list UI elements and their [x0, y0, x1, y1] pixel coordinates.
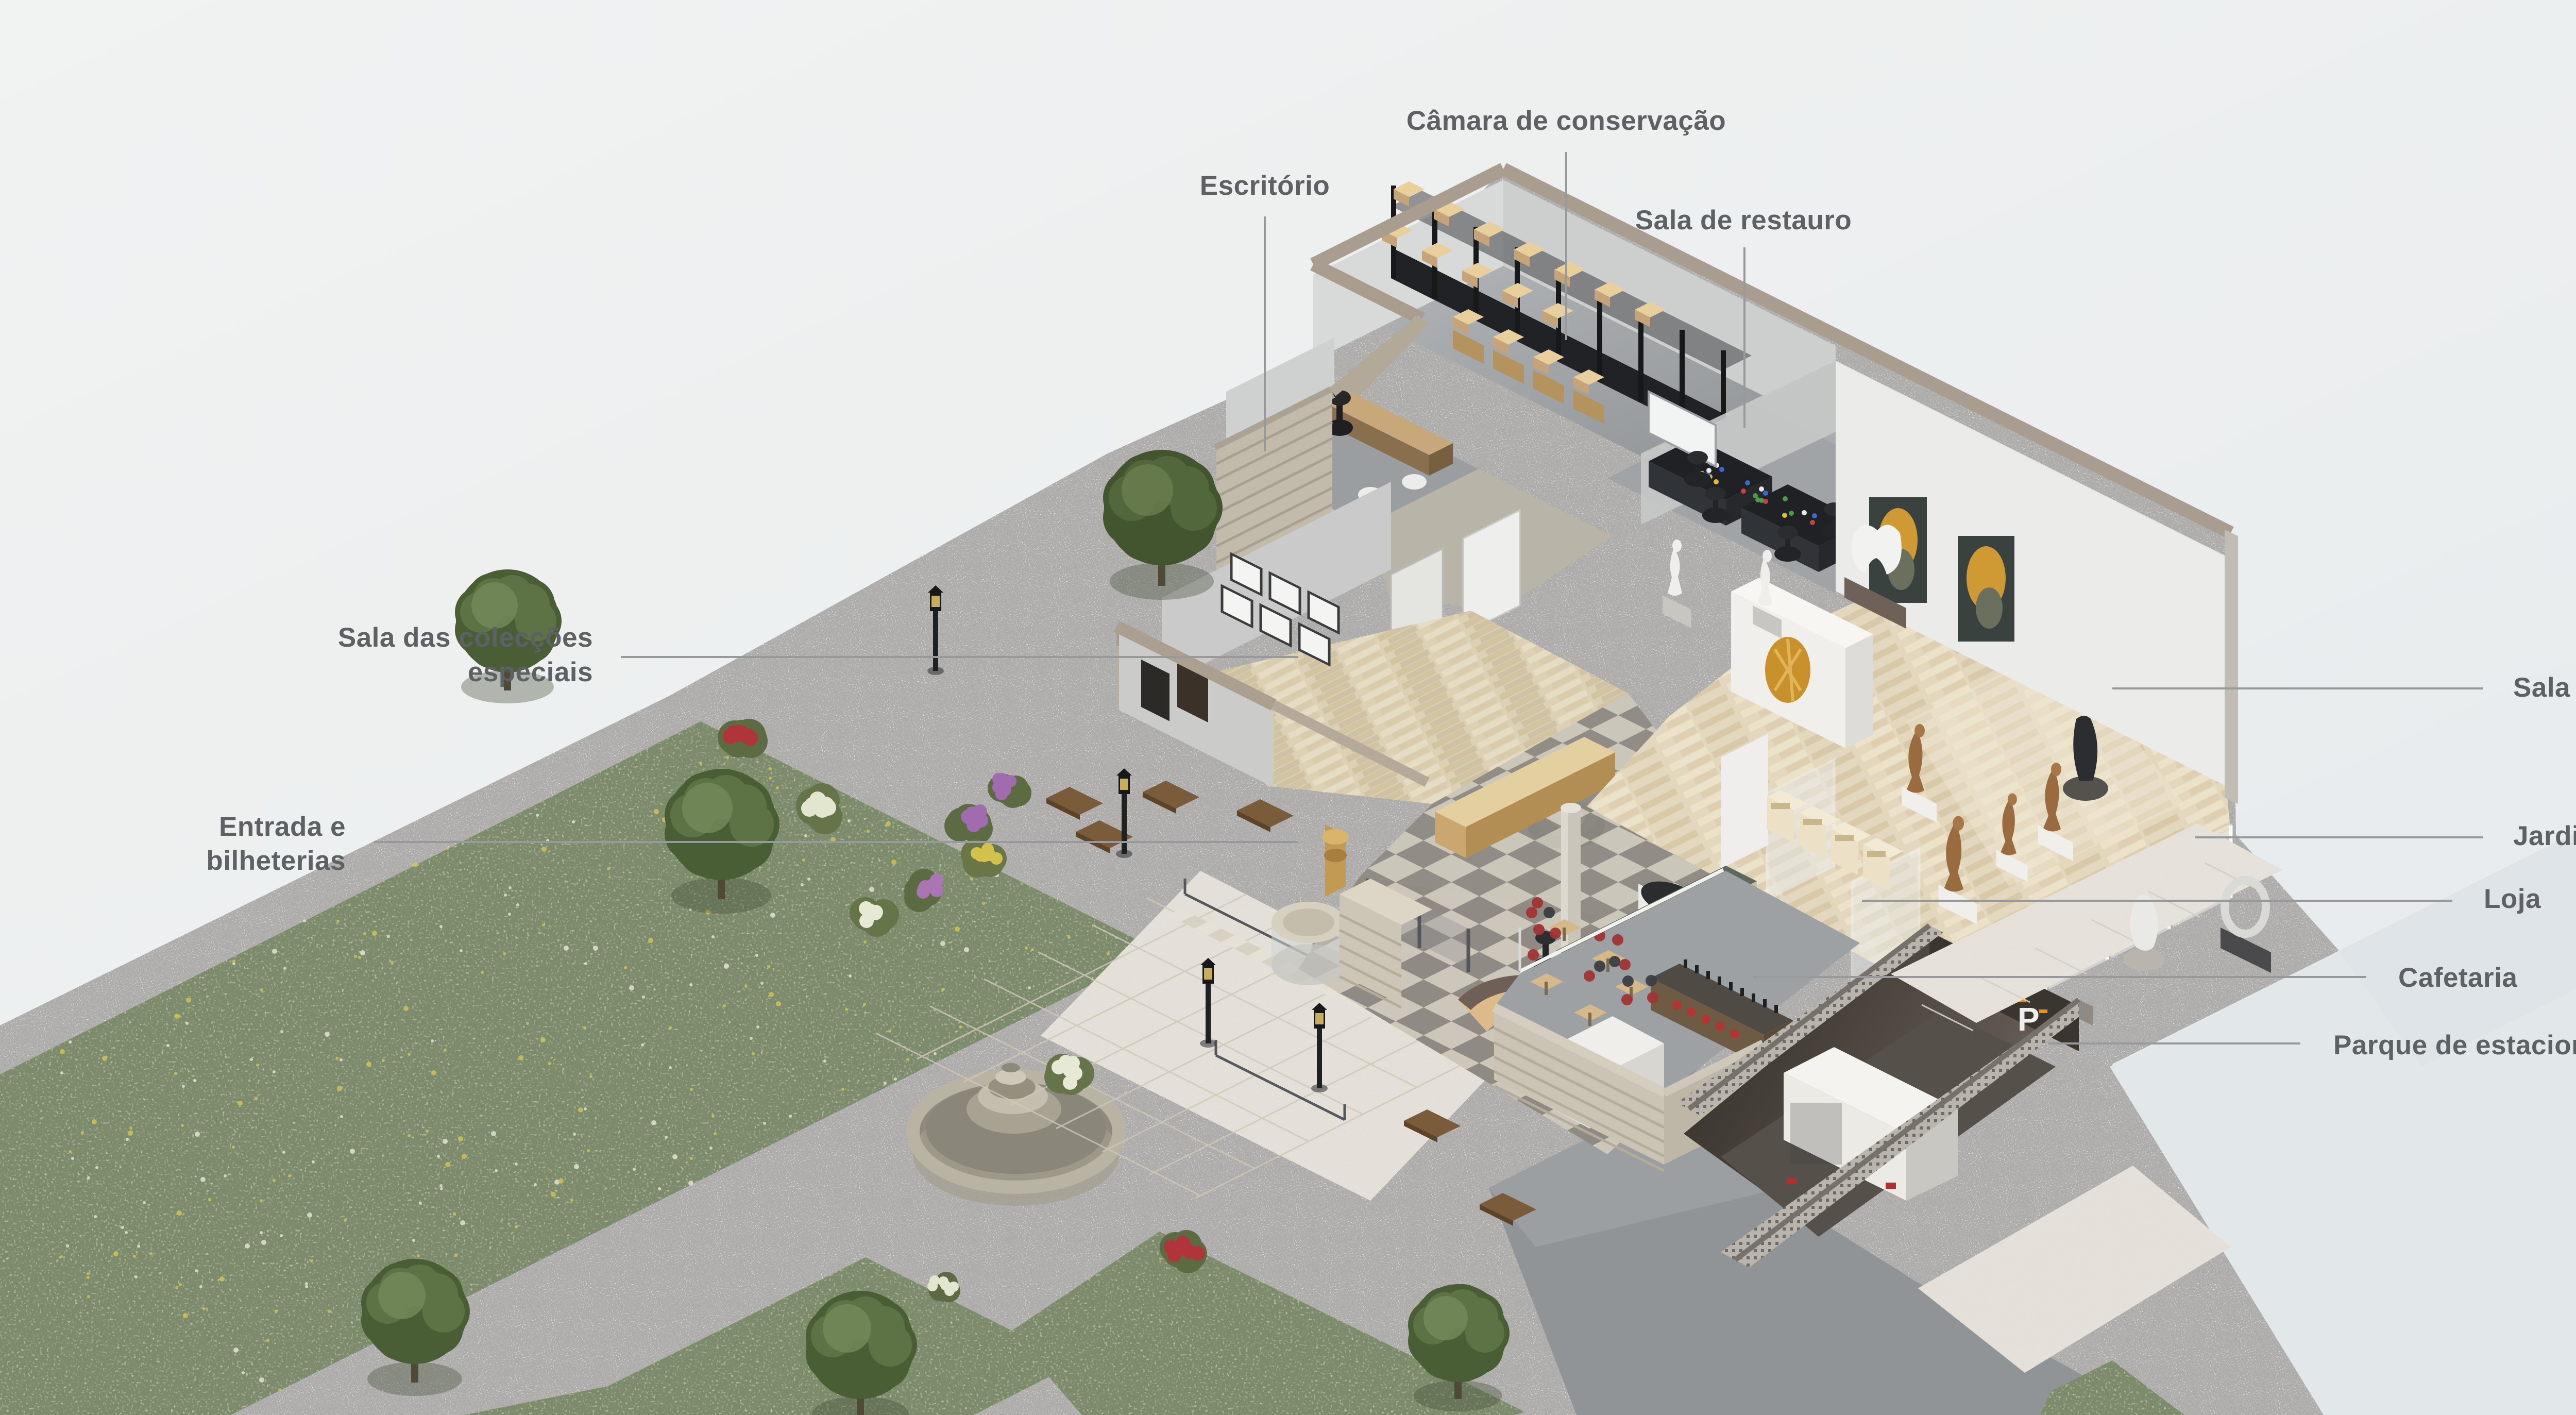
svg-text:Sala das colecções: Sala das colecções	[338, 622, 593, 653]
svg-text:Entrada e: Entrada e	[219, 812, 346, 842]
svg-text:Câmara de conservação: Câmara de conservação	[1406, 106, 1726, 136]
svg-text:Parque de estacionamento: Parque de estacionamento	[2333, 1030, 2576, 1060]
svg-text:Sala de exposições: Sala de exposições	[2513, 672, 2576, 703]
svg-text:especiais: especiais	[468, 657, 593, 687]
svg-text:Loja: Loja	[2484, 884, 2541, 914]
svg-text:Sala de restauro: Sala de restauro	[1635, 205, 1852, 235]
svg-text:Escritório: Escritório	[1200, 171, 1330, 201]
svg-text:bilheterias: bilheterias	[206, 846, 346, 876]
svg-text:Jardins: Jardins	[2513, 821, 2576, 851]
svg-text:Cafetaria: Cafetaria	[2398, 963, 2517, 993]
